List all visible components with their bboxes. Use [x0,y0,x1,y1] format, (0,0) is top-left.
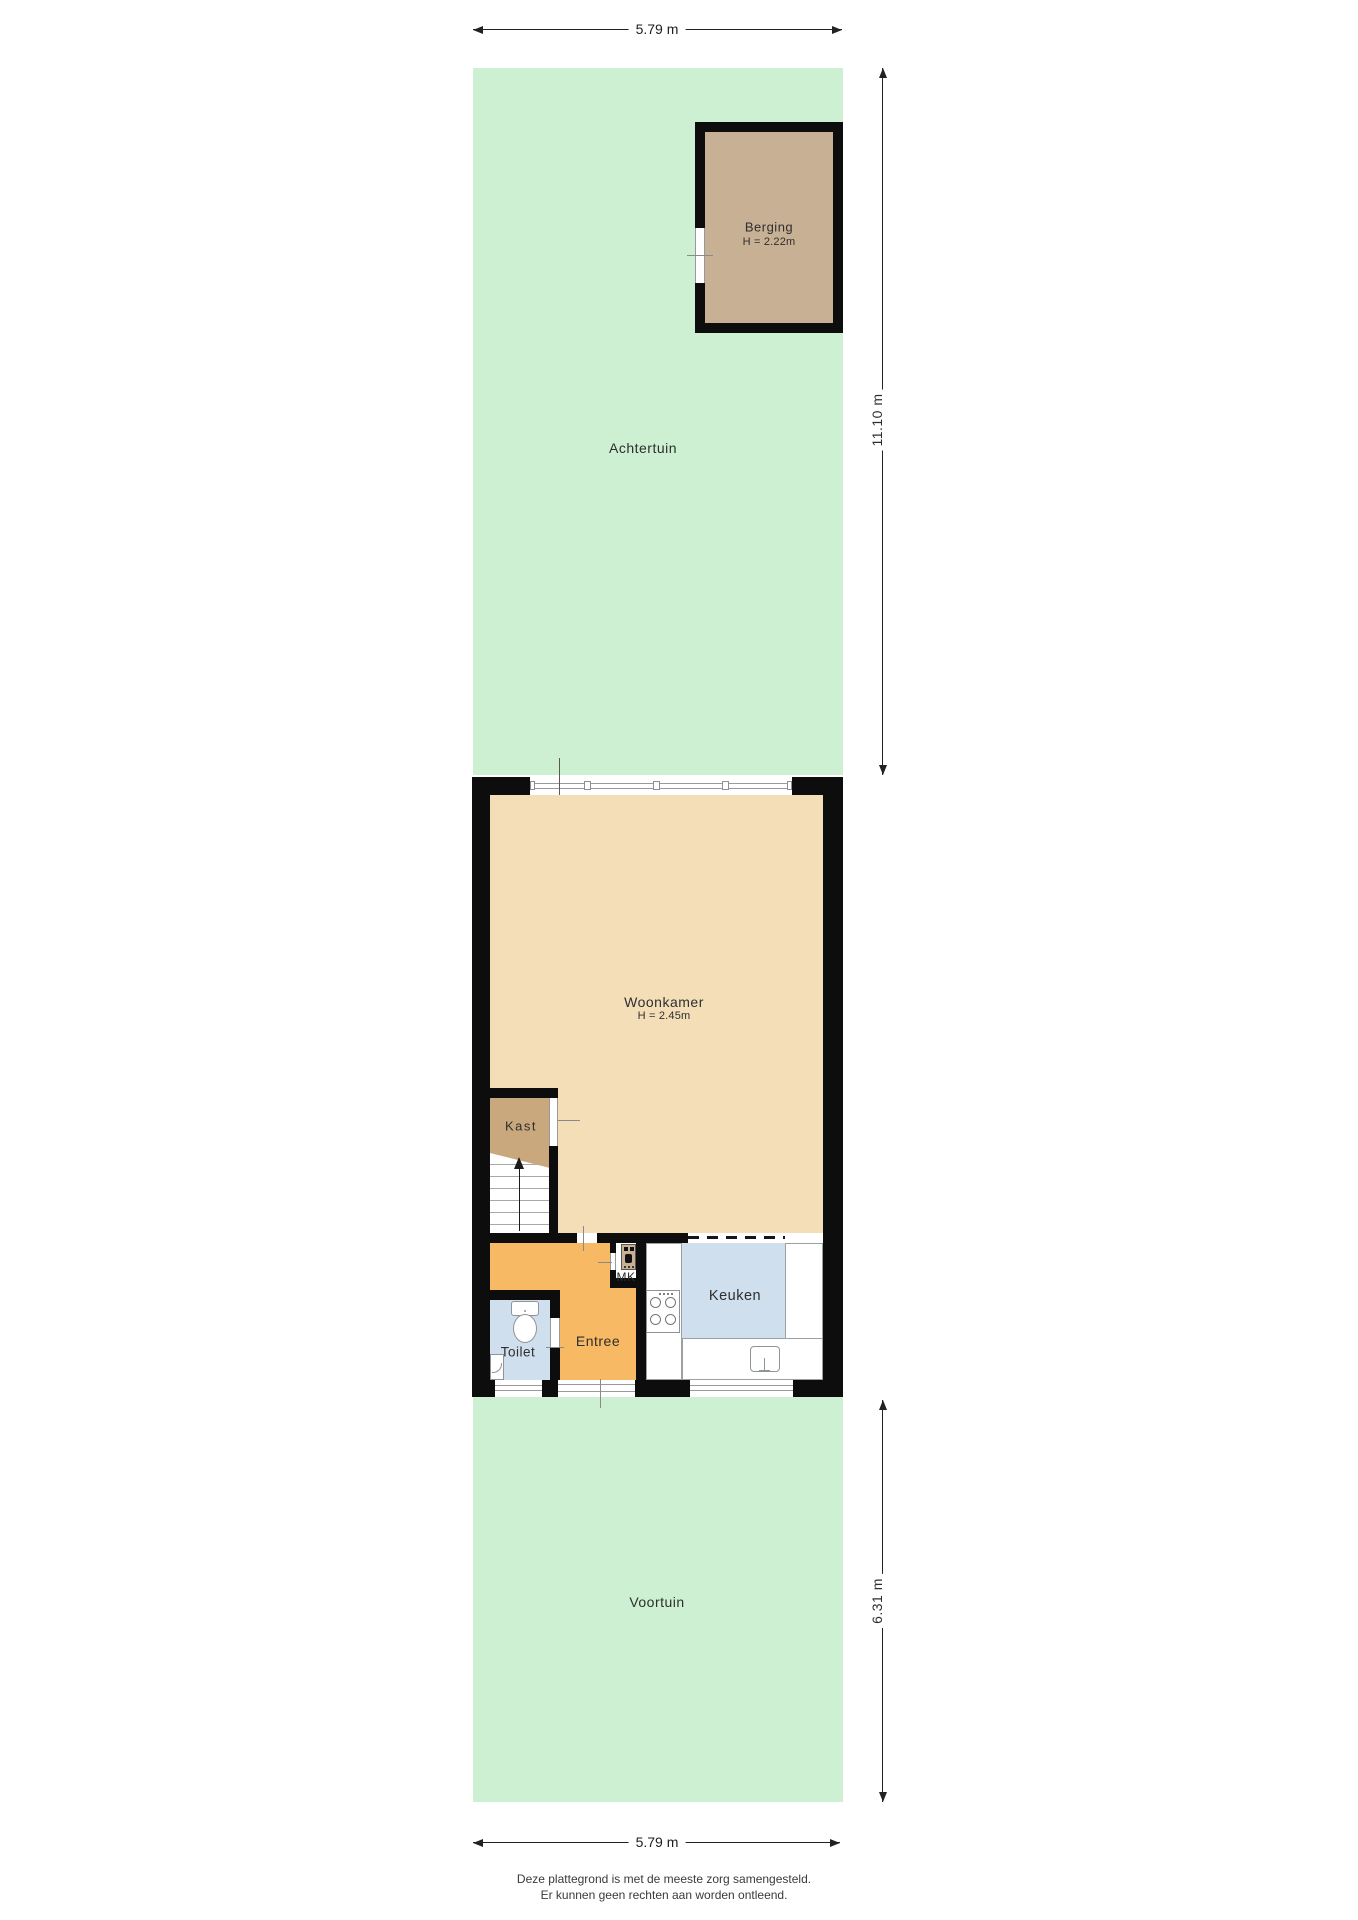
woonkamer-height-label: H = 2.45m [638,1010,691,1022]
toilet-window-glass [495,1385,542,1386]
woonkamer-south-wall-right [597,1233,646,1243]
kast-wall-top [490,1088,558,1098]
stove-burner [665,1314,676,1325]
toilet-window [495,1381,542,1396]
stove-burner [650,1314,661,1325]
front-door-sill-line2 [558,1391,635,1392]
kitchen-top-wall [646,1233,688,1243]
kitchen-window-glass [690,1385,793,1386]
back-garden-label: Achtertuin [609,440,677,456]
toilet-bowl-icon [513,1314,537,1343]
dim-bottom-arrow-right [830,1839,840,1847]
floorplan-page: Achtertuin Berging H = 2.22m Woonkamer H… [0,0,1358,1920]
stairs-up-arrow-icon [514,1157,524,1169]
kast-label: Kast [505,1119,537,1134]
dim-frontgarden-arrow-bottom [879,1792,887,1802]
woonkamer-entree-door-line [583,1226,584,1251]
meter-box-fuse-2 [630,1247,634,1251]
dim-frontgarden-arrow-top [879,1400,887,1410]
house-wall-bottom-1 [472,1380,495,1397]
kitchen-window-glass2 [690,1390,793,1391]
counter-top-gap [785,1233,823,1243]
berging-height-label: H = 2.22m [743,236,796,248]
stove-knob [671,1293,673,1295]
house-wall-bottom-2 [542,1380,558,1397]
woonkamer-entree-opening [577,1233,597,1243]
berging-label: Berging [745,220,793,235]
stove-burner [665,1297,676,1308]
window-mullion-2 [653,781,660,790]
dim-backgarden-label: 11.10 m [868,389,886,450]
kitchen-faucet-base [759,1370,770,1371]
house-wall-top-left [472,777,530,795]
toilet-door [550,1318,560,1348]
toilet-cistern-button [524,1310,526,1312]
stove-icon [646,1290,680,1333]
window-end-cap-right [787,781,792,790]
mk-wall-left-upper [610,1243,616,1253]
dim-bottom-label: 5.79 m [629,1834,686,1850]
entree-keuken-wall [636,1243,646,1380]
keuken-label: Keuken [709,1288,761,1304]
house-wall-bottom-4 [793,1380,843,1397]
window-mullion-1 [584,781,591,790]
meter-box-fuse-1 [624,1247,628,1251]
front-door-opening [558,1380,635,1397]
kast-door [549,1098,558,1146]
stairs-direction-line [519,1167,520,1231]
entree-label: Entree [576,1333,620,1349]
front-door-sill-line [558,1384,635,1385]
stove-knob [663,1293,665,1295]
livingroom-window [530,777,792,795]
house-wall-left [472,777,490,1397]
kast-door-swing [558,1120,580,1121]
mk-door-swing [598,1262,612,1263]
toilet-label: Toilet [501,1345,536,1360]
house-wall-top-right [792,777,843,795]
house-wall-right [823,777,843,1397]
stove-knob [659,1293,661,1295]
meter-box-meter [625,1254,632,1263]
dim-bottom-arrow-left [473,1839,483,1847]
stove-knob [667,1293,669,1295]
dim-backgarden-arrow-bottom [879,765,887,775]
dim-top-arrow-left [473,26,483,34]
dim-top-label: 5.79 m [629,21,686,37]
dim-top-arrow-right [832,26,842,34]
toilet-door-swing [546,1347,564,1348]
kitchen-window [690,1381,793,1396]
house-wall-bottom-3 [635,1380,690,1397]
livingroom-window-glass-line [530,783,792,784]
berging-door-swing [687,255,713,256]
kitchen-sink-icon [750,1346,780,1372]
front-door-swing [600,1379,601,1408]
dim-frontgarden-label: 6.31 m [868,1574,886,1628]
woonkamer-south-wall-left [490,1233,577,1243]
stove-burner [650,1297,661,1308]
window-mullion-3 [722,781,729,790]
livingroom-window-glass-line2 [530,788,792,789]
dim-backgarden-arrow-top [879,68,887,78]
disclaimer-line-2: Er kunnen geen rechten aan worden ontlee… [541,1888,788,1902]
window-end-cap-left [530,781,535,790]
disclaimer-line-1: Deze plattegrond is met de meeste zorg s… [517,1872,811,1886]
mk-wall-left-lower [610,1270,616,1278]
toilet-wall-top [490,1290,560,1300]
meter-box-dot [628,1266,630,1268]
front-garden-label: Voortuin [629,1594,684,1610]
open-connection-dashes [688,1236,785,1239]
mk-label: MK [617,1270,636,1284]
meter-box-dot [632,1266,634,1268]
meter-box-dot [624,1266,626,1268]
woonkamer-label: Woonkamer [624,994,704,1010]
toilet-window-glass2 [495,1390,542,1391]
kitchen-counter-right [785,1243,823,1339]
